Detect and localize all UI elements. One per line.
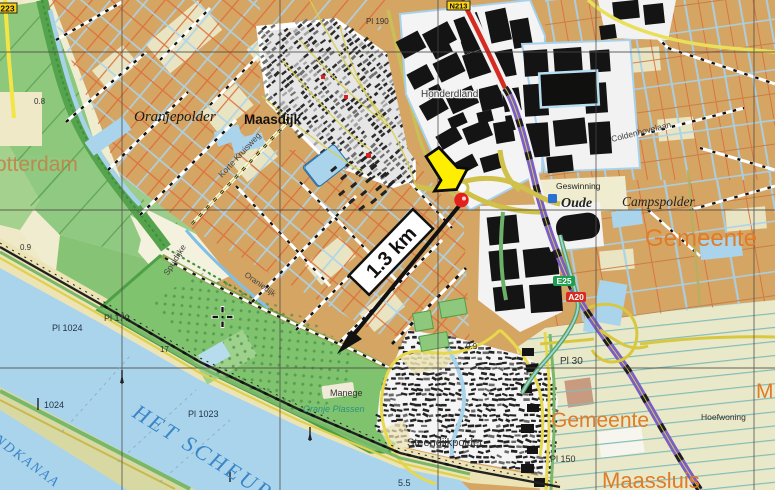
svg-text:Pl 30: Pl 30 bbox=[560, 356, 583, 367]
svg-text:A20: A20 bbox=[568, 292, 584, 302]
svg-text:0.9: 0.9 bbox=[20, 243, 32, 252]
svg-text:Geswinning: Geswinning bbox=[556, 181, 601, 191]
svg-text:Maasdijk: Maasdijk bbox=[244, 112, 302, 127]
svg-text:Oude: Oude bbox=[561, 196, 592, 211]
svg-text:Gemeente: Gemeente bbox=[551, 409, 649, 432]
svg-text:0.9: 0.9 bbox=[466, 342, 478, 351]
svg-text:Pl 150: Pl 150 bbox=[550, 454, 576, 464]
svg-text:Pl 1023: Pl 1023 bbox=[188, 409, 219, 419]
svg-text:Steendijkpolder: Steendijkpolder bbox=[407, 437, 483, 449]
svg-text:17: 17 bbox=[160, 345, 169, 354]
svg-text:Gemeente: Gemeente bbox=[645, 225, 757, 252]
svg-text:Maassluis: Maassluis bbox=[602, 468, 700, 490]
svg-text:M: M bbox=[756, 380, 774, 403]
svg-text:Hoefwoning: Hoefwoning bbox=[701, 412, 746, 422]
svg-text:5.5: 5.5 bbox=[398, 478, 411, 488]
svg-text:Oranje Plassen: Oranje Plassen bbox=[303, 404, 365, 414]
svg-text:Manege: Manege bbox=[330, 388, 363, 398]
svg-text:1024: 1024 bbox=[44, 400, 64, 410]
svg-text:Pl 170: Pl 170 bbox=[104, 313, 130, 323]
svg-text:otterdam: otterdam bbox=[0, 153, 78, 176]
svg-text:Oranjepolder: Oranjepolder bbox=[134, 109, 216, 125]
svg-text:Honderdland: Honderdland bbox=[421, 89, 478, 100]
svg-text:0.8: 0.8 bbox=[34, 97, 46, 106]
svg-text:Pl 190: Pl 190 bbox=[366, 17, 389, 26]
svg-text:223: 223 bbox=[0, 4, 14, 14]
svg-text:E25: E25 bbox=[556, 276, 571, 286]
svg-text:Pl 1024: Pl 1024 bbox=[52, 323, 83, 333]
svg-text:Campspolder: Campspolder bbox=[622, 194, 696, 209]
svg-text:N213: N213 bbox=[450, 2, 468, 11]
